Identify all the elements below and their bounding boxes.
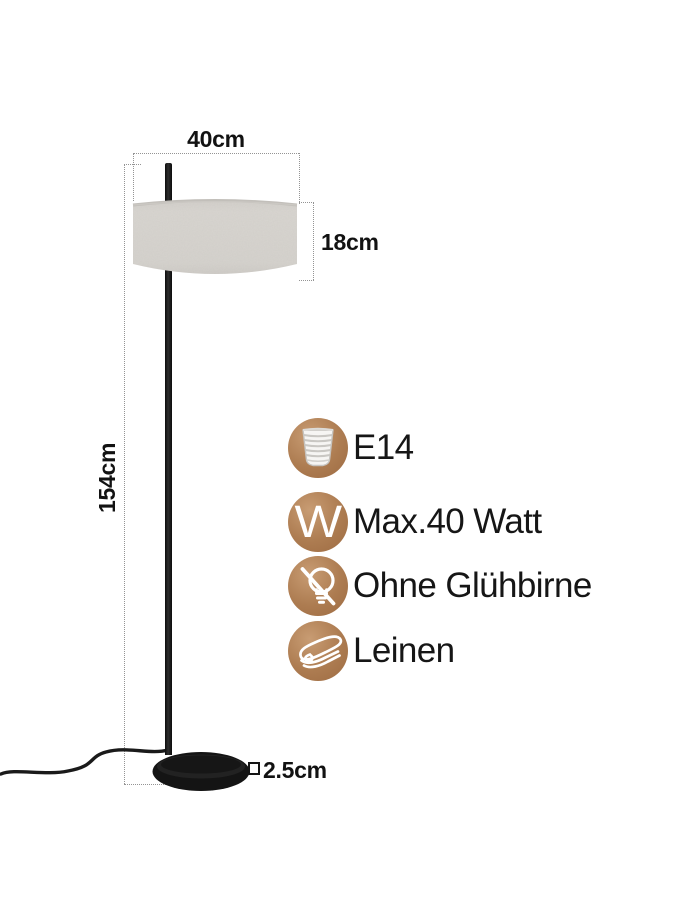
feature-row-material: Leinen (288, 621, 455, 681)
dim-shade-height-line (313, 202, 314, 280)
dim-shade-tick-bottom (299, 280, 314, 281)
feature-row-watt: W Max.40 Watt (288, 492, 542, 552)
dim-label-base-thickness: 2.5cm (263, 757, 327, 784)
feature-label: Leinen (353, 621, 455, 681)
feature-label: E14 (353, 418, 413, 478)
dim-height-line (124, 164, 125, 784)
dim-label-width: 40cm (185, 126, 247, 153)
watt-icon: W (288, 492, 348, 552)
dim-label-shade-height: 18cm (321, 229, 379, 256)
feature-row-socket: E14 (288, 418, 413, 478)
watt-letter: W (294, 492, 342, 552)
no-bulb-icon (288, 556, 348, 616)
base-thickness-bracket (248, 762, 260, 775)
feature-label: Ohne Glühbirne (353, 556, 592, 616)
product-dimension-diagram: 40cm 154cm 18cm 2.5cm E14 W Max.40 Watt (0, 0, 690, 920)
lamp-shade (131, 194, 299, 286)
lamp-base (150, 751, 254, 793)
dim-width-tick-right (299, 153, 300, 204)
dim-height-tick-top (124, 164, 141, 165)
feature-label: Max.40 Watt (353, 492, 542, 552)
dim-width-line (133, 153, 299, 154)
linen-icon (288, 621, 348, 681)
dim-label-total-height: 154cm (95, 443, 119, 513)
dim-shade-tick-top (299, 202, 314, 203)
e14-socket-icon (288, 418, 348, 478)
feature-row-bulb: Ohne Glühbirne (288, 556, 592, 616)
